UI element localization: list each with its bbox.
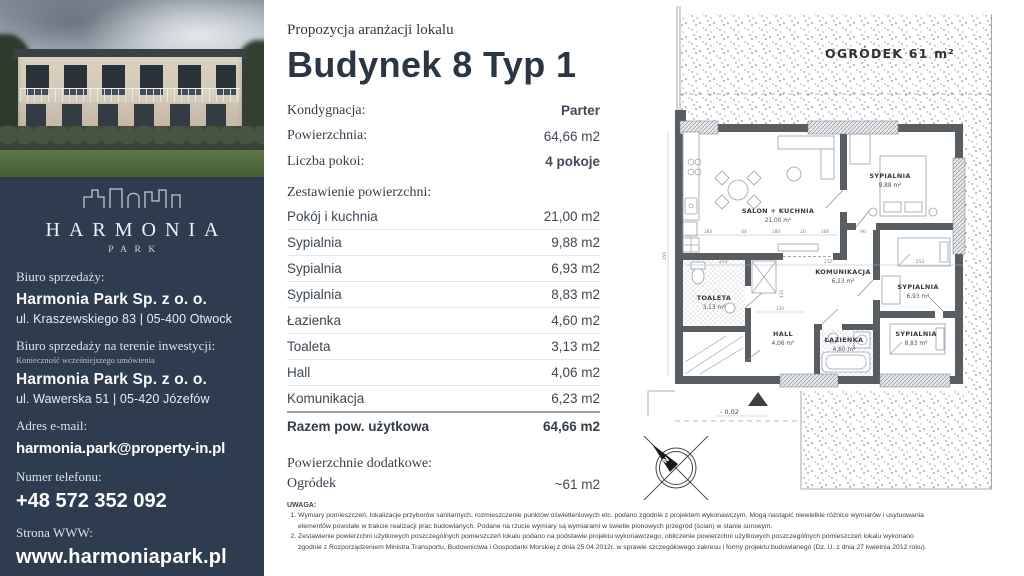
svg-text:44: 44	[741, 229, 747, 235]
total-value: 64,66 m2	[543, 419, 600, 434]
area-row: Sypialnia 6,93 m2	[287, 256, 600, 282]
office-label: Biuro sprzedaży:	[16, 269, 248, 285]
site-office-label: Biuro sprzedaży na terenie inwestycji:	[16, 338, 248, 354]
photo-balcony-rail	[20, 88, 240, 102]
room-name: Łazienka	[287, 313, 341, 328]
room-label: KOMUNIKACJA	[815, 268, 870, 276]
room-name: Sypialnia	[287, 261, 342, 276]
room-area: 4,60 m2	[551, 313, 600, 328]
sidebar: HARMONIA PARK Biuro sprzedaży: Harmonia …	[0, 0, 264, 576]
page-title: Budynek 8 Typ 1	[287, 46, 600, 84]
room-area-label: 8,83 m²	[905, 340, 928, 347]
summary-table: Kondygnacja: Parter Powierzchnia: 64,66 …	[287, 98, 600, 175]
site-office-company: Harmonia Park Sp. z o. o.	[16, 371, 248, 389]
summary-label: Kondygnacja:	[287, 103, 366, 119]
brand-subtitle: PARK	[0, 245, 264, 255]
svg-text:135: 135	[779, 290, 785, 299]
garden-area: ~61 m2	[555, 477, 600, 492]
compass-icon: N	[644, 436, 708, 500]
area-row: Hall 4,06 m2	[287, 360, 600, 386]
svg-text:254: 254	[719, 259, 728, 265]
logo-skyline-icon	[80, 183, 184, 210]
area-row: Komunikacja 6,23 m2	[287, 386, 600, 412]
room-area-label: 6,23 m²	[832, 278, 855, 285]
kicker: Propozycja aranżacji lokalu	[287, 22, 600, 39]
garden-label: OGRÓDEK 61 m²	[825, 46, 955, 61]
room-name: Pokój i kuchnia	[287, 209, 378, 224]
room-area-label: 4,60 m²	[833, 346, 856, 353]
area-row: Sypialnia 9,88 m2	[287, 230, 600, 256]
room-area: 4,06 m2	[551, 365, 600, 380]
email-label: Adres e-mail:	[16, 418, 248, 434]
room-label: SYPIALNIA	[869, 172, 910, 180]
phone-number[interactable]: +48 572 352 092	[16, 490, 248, 513]
footnote-item: Wymiary pomieszczeń, lokalizacje przybor…	[298, 511, 939, 532]
room-label: HALL	[773, 330, 793, 338]
office-address: ul. Kraszewskiego 83 | 05-400 Otwock	[16, 312, 248, 326]
footnotes: UWAGA: Wymiary pomieszczeń, lokalizacje …	[287, 502, 939, 553]
area-row: Pokój i kuchnia 21,00 m2	[287, 204, 600, 230]
room-name: Hall	[287, 365, 310, 380]
area-row: Sypialnia 8,83 m2	[287, 282, 600, 308]
areas-heading: Zestawienie powierzchni:	[287, 185, 600, 201]
site-office-note: Konieczność wcześniejszego umówienia	[16, 355, 248, 365]
building-photo	[0, 0, 264, 177]
summary-label: Liczba pokoi:	[287, 154, 364, 170]
email-link[interactable]: harmonia.park@property-in.pl	[16, 440, 248, 457]
summary-row: Kondygnacja: Parter	[287, 98, 600, 124]
svg-text:20: 20	[800, 229, 806, 235]
brand-logo: HARMONIA PARK	[0, 177, 264, 255]
summary-label: Powierzchnia:	[287, 128, 367, 144]
svg-text:112: 112	[824, 259, 833, 265]
total-row: Razem pow. użytkowa 64,66 m2	[287, 411, 600, 440]
room-label: SYPIALNIA	[895, 330, 936, 338]
svg-text:90: 90	[860, 229, 866, 235]
room-area: 21,00 m2	[544, 209, 600, 224]
room-area-label: 6,93 m²	[907, 293, 930, 300]
room-area-label: 3,13 m²	[703, 304, 726, 311]
svg-text:150: 150	[662, 252, 668, 261]
brand-name: HARMONIA	[0, 219, 264, 242]
room-label: SALON + KUCHNIA	[742, 207, 814, 215]
room-name: Toaleta	[287, 339, 331, 354]
summary-value: 64,66 m2	[544, 129, 600, 144]
room-name: Sypialnia	[287, 235, 342, 250]
summary-value: Parter	[561, 103, 600, 118]
svg-text:253: 253	[916, 259, 925, 265]
website-link[interactable]: www.harmoniapark.pl	[16, 546, 248, 569]
footnotes-list: Wymiary pomieszczeń, lokalizacje przybor…	[287, 511, 939, 553]
area-row: Łazienka 4,60 m2	[287, 308, 600, 334]
footnote-item: Zestawienie powierzchni użytkowych poszc…	[298, 532, 939, 553]
summary-row: Powierzchnia: 64,66 m2	[287, 123, 600, 149]
svg-text:- 0,02: - 0,02	[720, 408, 739, 416]
svg-text:180: 180	[772, 229, 781, 235]
summary-row: Liczba pokoi: 4 pokoje	[287, 149, 600, 175]
photo-grass	[0, 150, 264, 177]
room-area: 3,13 m2	[551, 339, 600, 354]
room-area: 8,83 m2	[551, 287, 600, 302]
garden-name: Ogródek	[287, 476, 336, 492]
svg-text:183: 183	[704, 229, 713, 235]
extra-areas-heading: Powierzchnie dodatkowe:	[287, 456, 600, 472]
extra-area-row: Ogródek ~61 m2	[287, 472, 600, 496]
room-name: Komunikacja	[287, 391, 364, 406]
room-label: ŁAZIENKA	[824, 336, 864, 344]
level-marker: - 0,02	[716, 392, 768, 416]
areas-table: Pokój i kuchnia 21,00 m2 Sypialnia 9,88 …	[287, 204, 600, 412]
phone-label: Numer telefonu:	[16, 469, 248, 485]
svg-text:100: 100	[821, 229, 830, 235]
site-office-address: ul. Wawerska 51 | 05-420 Józefów	[16, 392, 248, 406]
toaleta-tiles	[683, 260, 745, 326]
sidebar-contact: Biuro sprzedaży: Harmonia Park Sp. z o. …	[0, 255, 264, 569]
room-area: 6,23 m2	[551, 391, 600, 406]
room-area-label: 4,06 m²	[772, 340, 795, 347]
total-label: Razem pow. użytkowa	[287, 419, 429, 434]
office-company: Harmonia Park Sp. z o. o.	[16, 291, 248, 309]
area-row: Toaleta 3,13 m2	[287, 334, 600, 360]
room-area-label: 21,00 m²	[765, 217, 791, 224]
room-label: SYPIALNIA	[897, 283, 938, 291]
room-area-label: 9,88 m²	[879, 182, 902, 189]
svg-text:120: 120	[776, 306, 785, 312]
details-column: Propozycja aranżacji lokalu Budynek 8 Ty…	[287, 0, 600, 496]
summary-value: 4 pokoje	[545, 154, 600, 169]
floor-plan: OGRÓDEK 61 m²	[628, 6, 1016, 506]
room-name: Sypialnia	[287, 287, 342, 302]
room-area: 6,93 m2	[551, 261, 600, 276]
page: HARMONIA PARK Biuro sprzedaży: Harmonia …	[0, 0, 1024, 576]
room-area: 9,88 m2	[551, 235, 600, 250]
www-label: Strona WWW:	[16, 525, 248, 541]
room-label: TOALETA	[697, 294, 731, 302]
